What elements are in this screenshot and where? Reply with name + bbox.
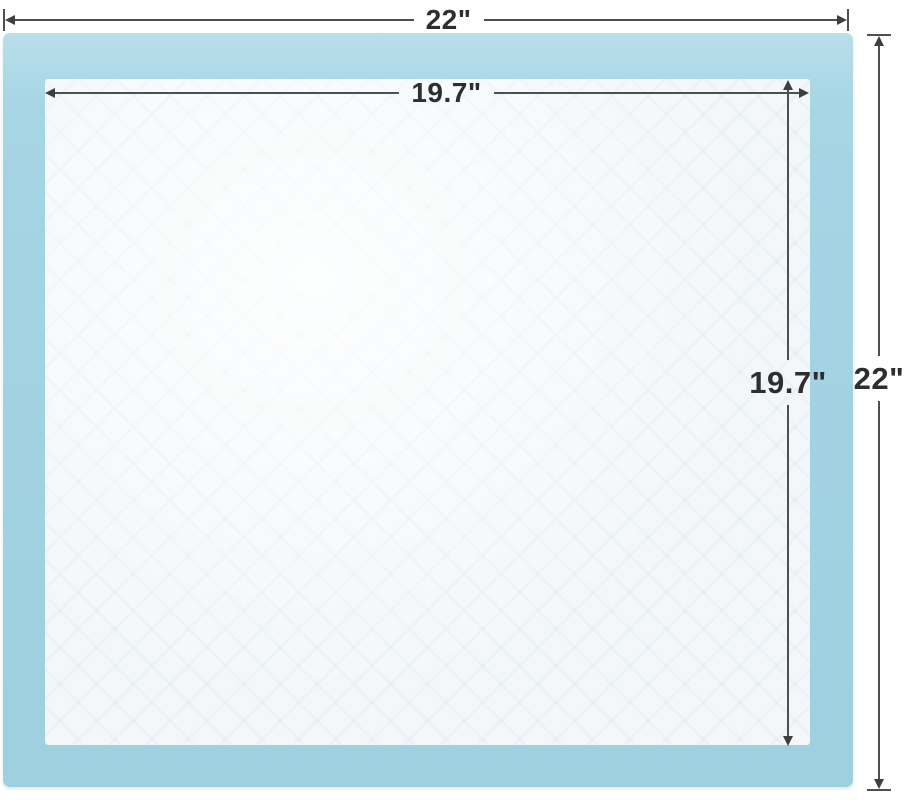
dimension-line [494,92,799,94]
arrow-up-icon [874,36,884,46]
arrow-right-icon [837,15,847,25]
inner-height-label: 19.7" [749,360,827,405]
outer-height-dimension: 22" [866,34,892,791]
outer-height-label: 22" [854,356,905,401]
inner-width-label: 19.7" [399,79,493,107]
outer-width-label: 22" [414,6,484,34]
dimension-line [484,19,837,21]
arrow-down-icon [874,779,884,789]
inner-height-dimension: 19.7" [775,80,801,746]
dimension-line [15,19,414,21]
dimension-line [787,405,789,736]
pad-absorbent-core [45,79,810,745]
inner-width-dimension: 19.7" [45,80,809,106]
arrow-left-icon [5,15,15,25]
arrow-down-icon [783,736,793,746]
arrow-up-icon [783,80,793,90]
product-dimension-diagram: 22" 19.7" 22" 19.7" [0,0,905,800]
pad-outer-border [3,33,853,787]
dimension-line [878,46,880,356]
dimension-tick [867,789,891,791]
arrow-left-icon [45,88,55,98]
dimension-line [878,401,880,779]
outer-width-dimension: 22" [3,7,849,33]
dimension-tick [847,9,849,31]
dimension-line [55,92,399,94]
dimension-line [787,90,789,360]
